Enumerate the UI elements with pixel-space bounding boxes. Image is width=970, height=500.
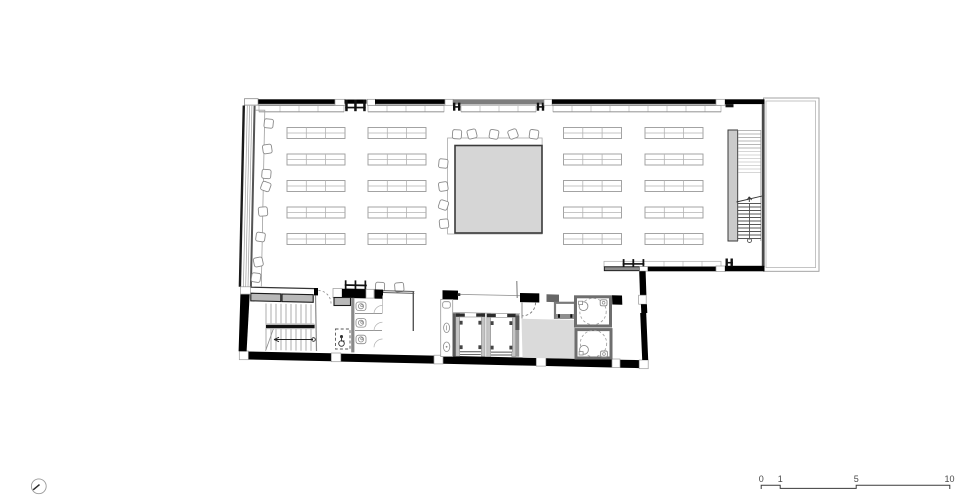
svg-text:1: 1 bbox=[778, 474, 783, 484]
svg-text:5: 5 bbox=[854, 474, 859, 484]
svg-text:0: 0 bbox=[759, 474, 764, 484]
svg-text:10: 10 bbox=[945, 474, 955, 484]
